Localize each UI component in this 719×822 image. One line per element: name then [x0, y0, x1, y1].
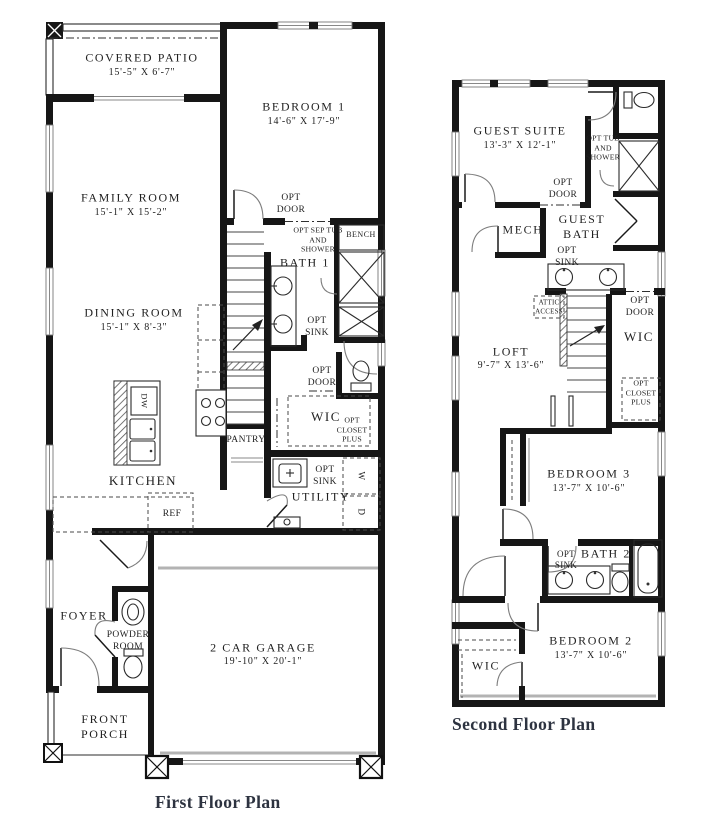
room-dims-bedroom-2: 13'-7" X 10'-6"	[555, 650, 628, 663]
room-dims-loft: 9'-7" X 13'-6"	[478, 360, 545, 373]
room-label-guest-bath: GUEST BATH	[552, 212, 612, 242]
attic-access-label: ATTIC ACCESS	[530, 298, 568, 316]
room-dims-family-room: 15'-1" X 15'-2"	[95, 207, 168, 220]
opt-closet-plus-label-2f: OPT CLOSET PLUS	[618, 378, 664, 407]
dishwasher-label: DW	[139, 393, 150, 408]
refrigerator-label: REF	[163, 509, 182, 521]
first-floor-plan-title: First Floor Plan	[155, 792, 281, 813]
second-floor-plan-title: Second Floor Plan	[452, 714, 596, 735]
room-dims-bedroom-3: 13'-7" X 10'-6"	[553, 483, 626, 496]
room-dims-bedroom-1: 14'-6" X 17'-9"	[268, 116, 341, 129]
garage-porch-details	[44, 568, 382, 778]
opt-door-label-guest: OPT DOOR	[543, 178, 583, 202]
room-label-front-porch: FRONT PORCH	[70, 712, 140, 742]
opt-sink-label-bath1: OPT SINK	[300, 316, 334, 340]
room-label-wic2: WIC	[624, 329, 654, 345]
room-label-bath-2: BATH 2	[581, 547, 631, 562]
dryer-label: D	[355, 509, 366, 516]
interior-walls	[112, 22, 385, 686]
opt-door-label-bedroom1: OPT DOOR	[271, 193, 311, 217]
opt-door-label-wic: OPT DOOR	[302, 366, 342, 390]
room-label-loft: LOFT	[493, 345, 529, 360]
opt-door-label-wic2: OPT DOOR	[620, 296, 660, 320]
room-dims-dining-room: 15'-1" X 8'-3"	[101, 322, 168, 335]
kitchen-fixtures	[53, 305, 226, 532]
room-dims-garage: 19'-10" X 20'-1"	[224, 656, 302, 669]
room-label-utility: UTILITY	[292, 490, 351, 505]
room-label-bath-1: BATH 1	[280, 256, 330, 271]
washer-label: W	[355, 472, 366, 481]
room-dims-covered-patio: 15'-5" X 6'-7"	[109, 67, 176, 80]
room-label-foyer: FOYER	[60, 609, 107, 624]
room-label-powder-room: POWDER ROOM	[100, 630, 156, 654]
room-label-family-room: FAMILY ROOM	[81, 191, 181, 206]
opt-closet-plus-label: OPT CLOSET PLUS	[330, 415, 374, 444]
room-label-wic3: WIC	[472, 659, 500, 674]
room-label-bedroom-2: BEDROOM 2	[549, 634, 632, 649]
room-label-covered-patio: COVERED PATIO	[85, 51, 198, 66]
room-label-garage: 2 CAR GARAGE	[210, 641, 316, 656]
opt-sep-tub-shower-label: OPT SEP TUB AND SHOWER	[292, 225, 344, 254]
pantry-label: PANTRY	[226, 435, 265, 447]
room-label-bedroom-1: BEDROOM 1	[262, 100, 345, 115]
opt-sink-label-utility: OPT SINK	[308, 465, 342, 489]
opt-sink-label-guest: OPT SINK	[550, 246, 584, 270]
opt-tub-shower-label: OPT TUB AND SHOWER	[579, 133, 627, 162]
room-label-dining-room: DINING ROOM	[84, 306, 183, 321]
room-label-mech: MECH	[502, 223, 543, 238]
room-label-kitchen: KITCHEN	[109, 473, 177, 489]
room-label-guest-suite: GUEST SUITE	[473, 124, 566, 139]
floor-plan-page: COVERED PATIO 15'-5" X 6'-7" BEDROOM 1 1…	[0, 0, 719, 822]
room-label-bedroom-3: BEDROOM 3	[547, 467, 630, 482]
floor-plan-drawing	[0, 0, 719, 822]
stairs-icon	[227, 232, 264, 424]
room-dims-guest-suite: 13'-3" X 12'-1"	[484, 140, 557, 153]
bench-label: BENCH	[346, 230, 376, 240]
opt-sink-label-bath2: OPT SINK	[549, 549, 583, 572]
first-floor-plan	[44, 22, 385, 778]
